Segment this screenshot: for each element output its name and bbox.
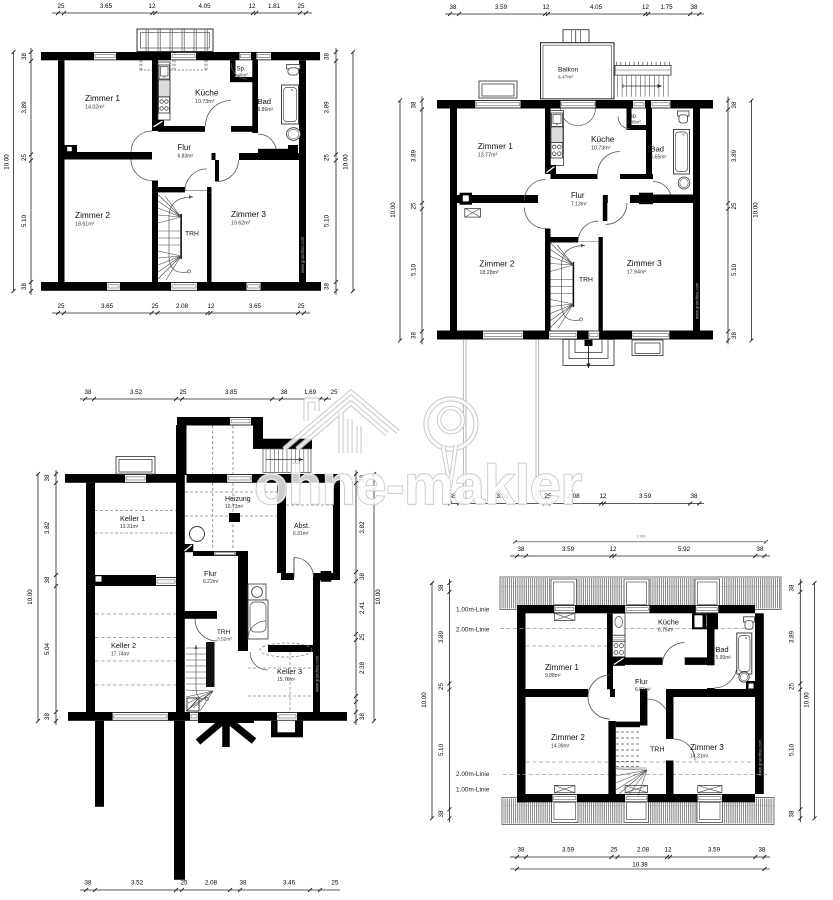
svg-text:5.10: 5.10 [324, 214, 331, 227]
svg-text:Zimmer 1: Zimmer 1 [85, 93, 120, 103]
svg-text:25: 25 [298, 3, 305, 10]
svg-text:14.31m²: 14.31m² [690, 754, 709, 760]
svg-text:25: 25 [181, 880, 188, 887]
svg-text:25: 25 [58, 3, 65, 10]
svg-text:38: 38 [731, 101, 738, 108]
svg-text:38: 38 [691, 4, 698, 11]
svg-text:3.52: 3.52 [131, 880, 144, 887]
svg-text:38: 38 [789, 810, 796, 817]
svg-text:12: 12 [249, 3, 256, 10]
svg-text:25: 25 [180, 389, 187, 396]
svg-text:Flur: Flur [178, 143, 192, 152]
svg-text:14.02m²: 14.02m² [85, 105, 105, 111]
svg-text:Abst.: Abst. [294, 523, 310, 530]
svg-text:Zimmer 2: Zimmer 2 [75, 210, 110, 220]
svg-text:38: 38 [21, 283, 28, 290]
svg-text:18.28m²: 18.28m² [479, 270, 499, 276]
svg-text:25: 25 [438, 683, 445, 690]
svg-text:10.73m²: 10.73m² [225, 504, 244, 510]
svg-text:25: 25 [331, 389, 338, 396]
svg-text:Bad: Bad [258, 97, 272, 106]
svg-text:10.38: 10.38 [632, 862, 648, 869]
svg-text:12: 12 [610, 546, 617, 553]
svg-text:12: 12 [149, 3, 156, 10]
svg-text:19.62m²: 19.62m² [231, 221, 251, 227]
svg-text:TRH: TRH [217, 629, 231, 636]
svg-text:Zimmer 3: Zimmer 3 [231, 209, 266, 219]
svg-text:25: 25 [324, 154, 331, 161]
svg-text:6.65m²: 6.65m² [651, 155, 667, 161]
svg-text:6.86m²: 6.86m² [258, 107, 274, 113]
svg-text:25: 25 [21, 154, 28, 161]
svg-text:38: 38 [450, 4, 457, 11]
svg-text:3.89: 3.89 [789, 630, 796, 643]
svg-text:3.89: 3.89 [731, 149, 738, 162]
svg-text:Küche: Küche [195, 88, 219, 98]
svg-text:TRH: TRH [185, 231, 199, 238]
svg-text:Bad: Bad [716, 645, 729, 654]
svg-text:3.65: 3.65 [249, 303, 262, 310]
svg-text:7.13m²: 7.13m² [571, 202, 587, 208]
svg-text:Küche: Küche [591, 134, 615, 144]
svg-text:25: 25 [731, 202, 738, 209]
svg-text:1.00m-Linie: 1.00m-Linie [456, 607, 490, 614]
svg-text:6.83m²: 6.83m² [635, 687, 651, 693]
svg-text:3.89: 3.89 [438, 630, 445, 643]
svg-text:4.05: 4.05 [198, 3, 211, 10]
svg-text:Flur: Flur [635, 677, 648, 686]
svg-text:17.94m²: 17.94m² [627, 270, 647, 276]
svg-text:2.08: 2.08 [205, 880, 218, 887]
svg-text:2.00m-Linie: 2.00m-Linie [456, 771, 490, 778]
svg-text:1:100: 1:100 [637, 535, 646, 539]
svg-text:TRH: TRH [650, 747, 664, 754]
svg-text:12: 12 [208, 303, 215, 310]
svg-text:38: 38 [411, 332, 418, 339]
svg-text:38: 38 [281, 389, 288, 396]
svg-text:3.85: 3.85 [225, 389, 238, 396]
svg-text:38: 38 [759, 847, 766, 854]
svg-text:1.00m-Linie: 1.00m-Linie [456, 787, 490, 794]
svg-text:10.00: 10.00 [27, 589, 34, 605]
svg-text:Zimmer 1: Zimmer 1 [478, 141, 513, 151]
svg-text:17.74m²: 17.74m² [111, 652, 130, 658]
svg-text:12: 12 [665, 847, 672, 854]
svg-text:5.90m²: 5.90m² [716, 655, 732, 661]
svg-text:2.41: 2.41 [359, 601, 366, 614]
svg-text:12: 12 [600, 493, 607, 500]
svg-text:Zimmer 3: Zimmer 3 [627, 258, 662, 268]
svg-text:10.00: 10.00 [390, 202, 397, 218]
svg-text:6.83m²: 6.83m² [178, 154, 194, 160]
svg-text:3.59: 3.59 [708, 847, 721, 854]
svg-text:3.65: 3.65 [101, 303, 114, 310]
svg-text:Balkon: Balkon [558, 67, 578, 74]
svg-text:2.08: 2.08 [176, 303, 189, 310]
svg-text:Flur: Flur [571, 191, 585, 200]
svg-text:3.65: 3.65 [100, 3, 113, 10]
svg-text:38: 38 [411, 101, 418, 108]
svg-text:13.31m²: 13.31m² [120, 524, 139, 530]
svg-text:3.59: 3.59 [495, 4, 508, 11]
svg-text:25: 25 [359, 633, 366, 640]
svg-text:3.89: 3.89 [21, 101, 28, 114]
svg-text:5.10: 5.10 [789, 743, 796, 756]
svg-text:15.76m²: 15.76m² [277, 677, 296, 683]
svg-text:1.69: 1.69 [304, 389, 317, 396]
svg-text:Zimmer 2: Zimmer 2 [551, 733, 585, 742]
svg-text:25: 25 [58, 303, 65, 310]
svg-text:TRH: TRH [579, 277, 593, 284]
svg-text:3.52m²: 3.52m² [217, 637, 232, 643]
svg-text:3.82: 3.82 [44, 521, 51, 534]
svg-text:38: 38 [44, 576, 51, 583]
svg-text:0.48m²: 0.48m² [234, 73, 249, 78]
svg-text:5.10: 5.10 [731, 263, 738, 276]
svg-text:38: 38 [731, 332, 738, 339]
svg-text:5.04: 5.04 [44, 642, 51, 655]
svg-text:38: 38 [757, 546, 764, 553]
svg-text:3.89: 3.89 [411, 149, 418, 162]
svg-text:1.81: 1.81 [268, 3, 281, 10]
svg-text:Keller 2: Keller 2 [111, 641, 136, 650]
svg-text:13.77m²: 13.77m² [478, 153, 498, 159]
svg-text:38: 38 [85, 880, 92, 887]
svg-text:2.00m-Linie: 2.00m-Linie [456, 627, 490, 634]
svg-text:3.59: 3.59 [562, 546, 575, 553]
svg-text:25: 25 [789, 683, 796, 690]
svg-text:25: 25 [611, 847, 618, 854]
svg-text:www.grundriss.com: www.grundriss.com [314, 655, 319, 692]
svg-text:Bad: Bad [651, 145, 665, 154]
svg-text:10.00: 10.00 [804, 692, 811, 708]
svg-text:14.39m²: 14.39m² [551, 744, 570, 750]
svg-text:www.grundriss.com: www.grundriss.com [694, 282, 699, 319]
svg-text:4.05: 4.05 [590, 4, 603, 11]
svg-text:25: 25 [332, 880, 339, 887]
svg-text:38: 38 [518, 847, 525, 854]
svg-text:3.52: 3.52 [130, 389, 143, 396]
svg-text:2.08: 2.08 [637, 847, 650, 854]
svg-text:www.grundriss.com: www.grundriss.com [758, 739, 763, 776]
svg-text:3.59: 3.59 [562, 847, 575, 854]
svg-text:Keller 1: Keller 1 [120, 514, 145, 523]
svg-text:6.31m²: 6.31m² [293, 531, 309, 537]
svg-text:38: 38 [240, 880, 247, 887]
svg-text:1.75: 1.75 [660, 4, 673, 11]
svg-text:38: 38 [324, 283, 331, 290]
svg-text:25: 25 [411, 202, 418, 209]
svg-text:Zimmer 1: Zimmer 1 [545, 663, 579, 672]
svg-text:10.00: 10.00 [753, 202, 760, 218]
svg-text:6.47m²: 6.47m² [558, 75, 573, 81]
svg-text:0.48m²: 0.48m² [627, 120, 641, 125]
svg-text:3.46: 3.46 [283, 880, 296, 887]
svg-text:3.59: 3.59 [639, 493, 652, 500]
svg-text:38: 38 [85, 389, 92, 396]
svg-text:Heizung: Heizung [225, 496, 251, 503]
svg-text:38: 38 [438, 584, 445, 591]
svg-text:2.38: 2.38 [359, 661, 366, 674]
svg-text:Keller 3: Keller 3 [277, 667, 302, 676]
svg-text:38: 38 [691, 493, 698, 500]
svg-text:10.73m²: 10.73m² [195, 99, 215, 105]
svg-text:25: 25 [298, 303, 305, 310]
svg-text:10.00: 10.00 [4, 154, 11, 170]
svg-text:5.92: 5.92 [678, 546, 691, 553]
svg-text:10.73m²: 10.73m² [591, 146, 611, 152]
svg-text:6.22m²: 6.22m² [203, 579, 219, 585]
svg-text:38: 38 [44, 474, 51, 481]
svg-text:10.00: 10.00 [421, 692, 428, 708]
svg-text:www.grundriss.com: www.grundriss.com [300, 236, 305, 273]
svg-text:38: 38 [44, 713, 51, 720]
svg-text:18.61m²: 18.61m² [75, 222, 95, 228]
svg-text:38: 38 [438, 810, 445, 817]
svg-text:Küche: Küche [658, 618, 679, 627]
svg-text:3.82: 3.82 [359, 521, 366, 534]
svg-text:5.10: 5.10 [411, 263, 418, 276]
svg-text:Flur: Flur [204, 569, 217, 578]
svg-text:38: 38 [359, 573, 366, 580]
svg-text:25: 25 [152, 303, 159, 310]
svg-text:Zimmer 3: Zimmer 3 [690, 743, 724, 752]
svg-text:38: 38 [21, 53, 28, 60]
svg-text:38: 38 [359, 713, 366, 720]
svg-text:Zimmer 2: Zimmer 2 [479, 259, 514, 269]
svg-text:38: 38 [518, 546, 525, 553]
svg-text:9.88m²: 9.88m² [545, 673, 561, 679]
svg-text:6.75m²: 6.75m² [658, 628, 674, 634]
svg-text:ohne-makler: ohne-makler [254, 453, 582, 516]
svg-text:5.10: 5.10 [438, 743, 445, 756]
svg-text:12: 12 [642, 4, 649, 11]
svg-text:12: 12 [543, 4, 550, 11]
svg-text:38: 38 [324, 53, 331, 60]
svg-text:38: 38 [789, 584, 796, 591]
svg-text:10.00: 10.00 [343, 154, 350, 170]
svg-text:5.10: 5.10 [21, 214, 28, 227]
svg-text:3.89: 3.89 [324, 101, 331, 114]
svg-text:10.00: 10.00 [375, 589, 382, 605]
